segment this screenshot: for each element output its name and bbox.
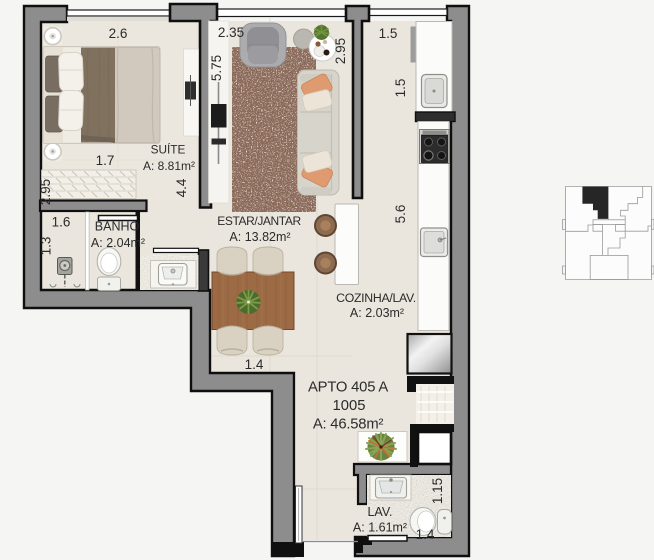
svg-text:1.7: 1.7 [96,153,115,168]
svg-text:APTO 405 A: APTO 405 A [308,380,388,396]
svg-text:A: 1.61m²: A: 1.61m² [353,521,407,535]
svg-text:A: 2.03m²: A: 2.03m² [350,306,404,320]
svg-text:4.4: 4.4 [174,178,189,197]
svg-text:2.95: 2.95 [333,38,348,64]
svg-text:1.3: 1.3 [39,237,54,256]
svg-text:1.6: 1.6 [52,215,71,230]
svg-text:1.15: 1.15 [430,478,445,504]
svg-text:1.5: 1.5 [379,26,398,41]
svg-text:2.95: 2.95 [38,179,53,205]
svg-text:BANHO: BANHO [95,220,140,234]
svg-text:A: 2.04m²: A: 2.04m² [91,236,145,250]
svg-text:A: 13.82m²: A: 13.82m² [229,230,290,244]
svg-text:1.5: 1.5 [393,79,408,98]
svg-text:ESTAR/JANTAR: ESTAR/JANTAR [217,214,301,228]
svg-text:5.75: 5.75 [209,55,224,81]
svg-text:1.4: 1.4 [416,527,435,542]
svg-text:1005: 1005 [333,398,366,414]
svg-text:1.4: 1.4 [245,357,264,372]
svg-text:LAV.: LAV. [367,505,392,519]
svg-text:A: 46.58m²: A: 46.58m² [313,417,384,433]
svg-text:SUÍTE: SUÍTE [151,143,186,157]
svg-text:COZINHA/LAV.: COZINHA/LAV. [336,291,416,305]
svg-text:A: 8.81m²: A: 8.81m² [143,159,195,173]
svg-text:2.6: 2.6 [109,26,128,41]
svg-text:2.35: 2.35 [218,25,244,40]
svg-text:5.6: 5.6 [393,205,408,224]
